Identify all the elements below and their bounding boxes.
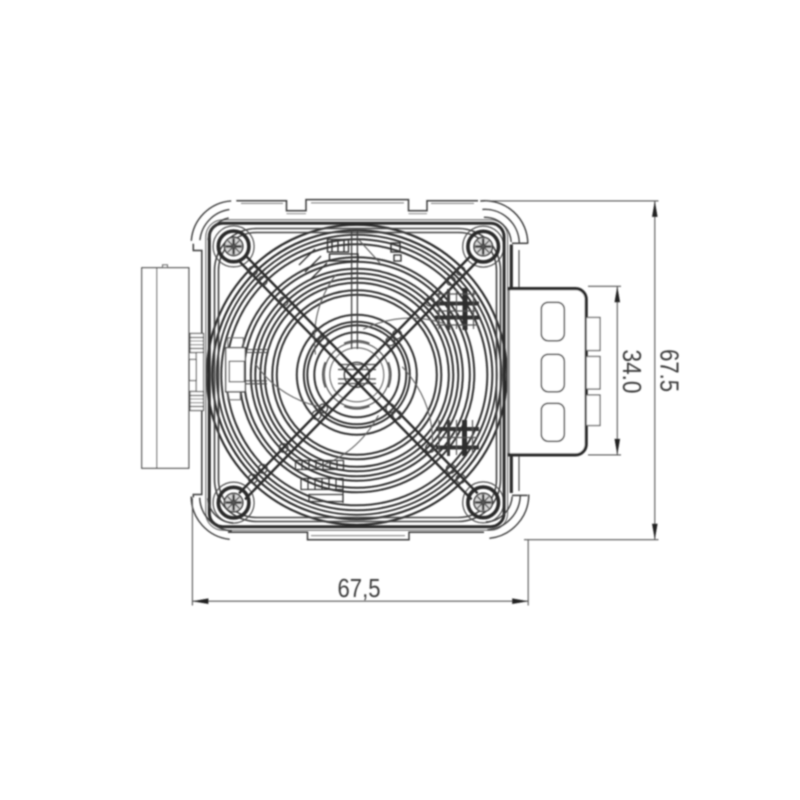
svg-text:34.0: 34.0 xyxy=(617,350,647,394)
svg-text:67.5: 67.5 xyxy=(655,349,685,392)
svg-text:67,5: 67,5 xyxy=(338,573,381,603)
